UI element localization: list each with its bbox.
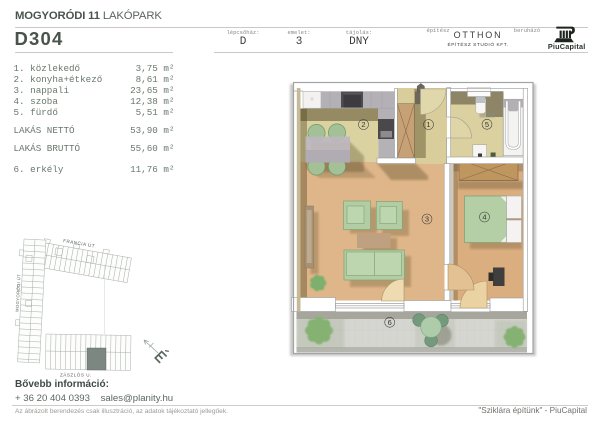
svg-text:ZÁSZLÓS U.: ZÁSZLÓS U.	[60, 372, 92, 378]
svg-text:3: 3	[425, 215, 429, 224]
svg-text:2: 2	[361, 120, 365, 129]
svg-text:1: 1	[426, 120, 430, 129]
svg-text:4: 4	[482, 213, 486, 222]
svg-text:5: 5	[485, 120, 489, 129]
svg-text:6: 6	[388, 318, 392, 327]
